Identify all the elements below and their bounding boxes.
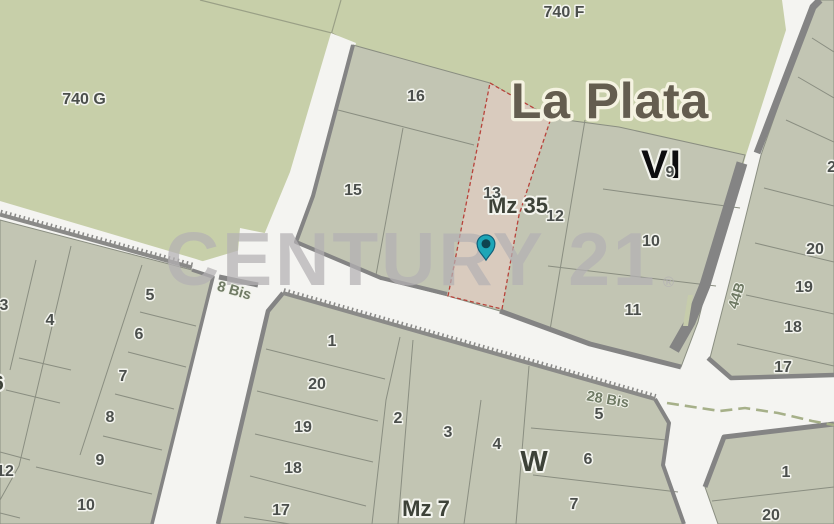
svg-text:6: 6 bbox=[135, 326, 144, 343]
svg-text:19: 19 bbox=[795, 279, 813, 296]
svg-text:9: 9 bbox=[666, 164, 675, 181]
svg-text:W: W bbox=[520, 446, 548, 478]
svg-text:La Plata: La Plata bbox=[511, 73, 710, 129]
svg-text:11: 11 bbox=[625, 302, 642, 319]
svg-text:17: 17 bbox=[774, 359, 792, 376]
svg-text:20: 20 bbox=[806, 241, 824, 258]
svg-text:7: 7 bbox=[119, 368, 128, 385]
svg-text:5: 5 bbox=[146, 287, 155, 304]
svg-text:13: 13 bbox=[483, 185, 501, 202]
svg-text:6: 6 bbox=[0, 372, 4, 395]
svg-text:VI: VI bbox=[641, 143, 683, 187]
svg-text:740 G: 740 G bbox=[62, 91, 106, 108]
svg-text:20: 20 bbox=[762, 507, 780, 524]
svg-text:16: 16 bbox=[407, 88, 425, 105]
svg-text:3: 3 bbox=[444, 424, 453, 441]
svg-text:3: 3 bbox=[0, 297, 9, 314]
svg-text:6: 6 bbox=[584, 451, 593, 468]
svg-text:®: ® bbox=[663, 274, 674, 291]
svg-text:4: 4 bbox=[493, 436, 502, 453]
svg-text:17: 17 bbox=[272, 502, 290, 519]
svg-text:19: 19 bbox=[294, 419, 312, 436]
svg-text:10: 10 bbox=[77, 497, 95, 514]
svg-text:10: 10 bbox=[642, 233, 660, 250]
svg-text:18: 18 bbox=[784, 319, 802, 336]
svg-text:12: 12 bbox=[546, 208, 564, 225]
svg-text:20: 20 bbox=[308, 376, 326, 393]
svg-text:15: 15 bbox=[344, 182, 362, 199]
svg-text:1: 1 bbox=[782, 464, 791, 481]
svg-text:20: 20 bbox=[827, 159, 834, 176]
svg-text:18: 18 bbox=[284, 460, 302, 477]
svg-text:9: 9 bbox=[96, 452, 105, 469]
svg-text:12: 12 bbox=[0, 463, 14, 480]
svg-text:5: 5 bbox=[595, 406, 604, 423]
svg-text:1: 1 bbox=[328, 333, 337, 350]
svg-text:4: 4 bbox=[46, 312, 55, 329]
svg-text:8: 8 bbox=[106, 409, 115, 426]
svg-text:7: 7 bbox=[570, 496, 579, 513]
svg-text:740 F: 740 F bbox=[544, 4, 585, 21]
svg-text:Mz 7: Mz 7 bbox=[402, 496, 450, 521]
svg-text:2: 2 bbox=[394, 410, 403, 427]
